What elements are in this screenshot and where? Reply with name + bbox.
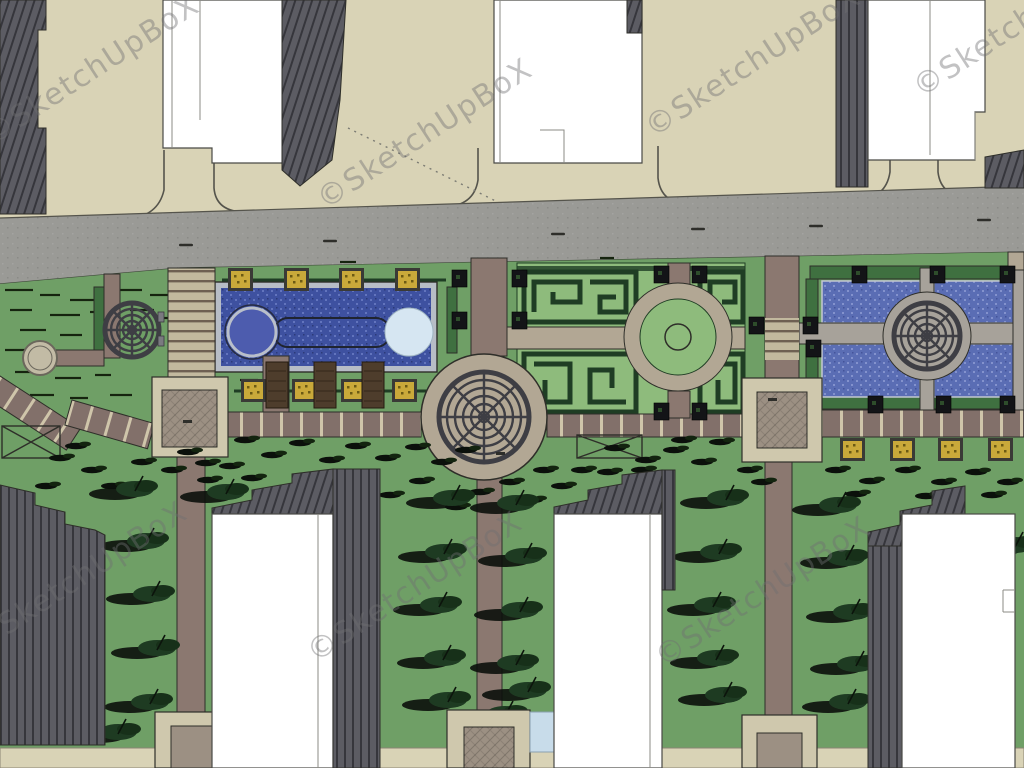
maze-south-stub: [668, 391, 690, 418]
grass-stroke: [340, 261, 356, 263]
dark-planter: [452, 312, 467, 329]
flower-planter: [284, 268, 309, 291]
walkway-center: [547, 414, 742, 437]
pools-east-path: [1013, 268, 1024, 410]
grass-stroke: [60, 334, 82, 336]
flower-planter: [890, 438, 915, 461]
pool-dark-circle-island: [228, 308, 276, 356]
right-path-steps: [765, 318, 799, 360]
plaza-east-mark: [768, 398, 777, 401]
dark-planter: [1000, 396, 1015, 413]
road-mark: [323, 240, 337, 243]
grass-stroke: [40, 294, 60, 296]
flower-planter: [339, 268, 364, 291]
walkway-east: [822, 410, 1024, 437]
pergola-bench: [266, 362, 288, 408]
plaza-east-hatch: [757, 392, 807, 448]
flower-planter: [292, 379, 317, 402]
dark-planter: [654, 403, 669, 420]
pergola-bench: [362, 362, 384, 408]
flower-planter: [938, 438, 963, 461]
grass-stroke: [150, 294, 168, 296]
flower-planter: [988, 438, 1013, 461]
flower-planter: [392, 379, 417, 402]
grand-stair-path: [168, 268, 215, 377]
plaza-south-center-hatch: [464, 727, 514, 768]
dark-planter: [512, 270, 527, 287]
grass-stroke: [50, 314, 80, 316]
central-plaza-mark: [496, 452, 505, 455]
grass-stroke: [10, 309, 32, 311]
dark-planter: [930, 266, 945, 283]
scene-canvas: ©SketchUpBoX©SketchUpBoX©SketchUpBoX©Ske…: [0, 0, 1024, 768]
dark-planter: [936, 396, 951, 413]
grass-stroke: [110, 394, 132, 396]
building6-gray-side: [868, 546, 902, 768]
small-water-square: [530, 712, 554, 752]
dark-planter: [512, 312, 527, 329]
building6-white-roof: [902, 514, 1015, 768]
pergola-benches: [266, 362, 384, 408]
pools-pavilion-structure: [894, 303, 960, 369]
dark-planter: [803, 317, 818, 334]
flower-planter: [840, 438, 865, 461]
dark-planter: [692, 266, 707, 283]
dark-planter: [1000, 266, 1015, 283]
central-radial-structure: [439, 372, 529, 462]
dark-planter: [806, 340, 821, 357]
dark-planter: [868, 396, 883, 413]
building3-gray-side: [836, 0, 868, 187]
grass-stroke: [120, 289, 142, 291]
plaza-west-hatch: [162, 390, 217, 447]
grass-stroke: [600, 257, 614, 259]
pools-hedge-bottom: [822, 396, 1015, 409]
plaza-south-west-inner: [171, 726, 213, 768]
grass-stroke: [30, 394, 54, 396]
flower-planter: [395, 268, 420, 291]
dark-planter: [852, 266, 867, 283]
pergola-bench: [314, 362, 336, 408]
plaza-west-mark: [183, 420, 192, 423]
road-mark: [551, 233, 565, 236]
building5-gray-edge: [662, 470, 675, 590]
grass-stroke: [95, 374, 111, 376]
grass-stroke: [5, 289, 33, 291]
road-mark: [691, 228, 705, 231]
building5-white-roof: [554, 514, 662, 768]
flower-planter: [228, 268, 253, 291]
grass-stroke: [70, 397, 88, 399]
building3-gray-wedge: [985, 150, 1024, 188]
road-mark: [977, 219, 991, 222]
center-path-upper: [471, 258, 507, 356]
pool-light-circle-island: [385, 308, 433, 356]
dark-planter: [654, 266, 669, 283]
dark-planter: [452, 270, 467, 287]
road-mark: [809, 225, 823, 228]
road-mark: [179, 244, 193, 247]
walkway-west: [228, 412, 421, 437]
building2-gray-corner: [627, 0, 642, 33]
sketchup-site-plan-render: ©SketchUpBoX©SketchUpBoX©SketchUpBoX©Ske…: [0, 0, 1024, 768]
maze-ring-lawn: [640, 299, 716, 375]
plaza-south-east-inner: [757, 733, 802, 768]
pools-hedge-top: [810, 266, 1015, 279]
dark-planter: [692, 403, 707, 420]
flower-planter: [241, 379, 266, 402]
grass-stroke: [55, 377, 81, 379]
dark-planter: [749, 317, 764, 334]
grass-stroke: [20, 329, 46, 331]
hedge-strip-left: [94, 287, 104, 353]
